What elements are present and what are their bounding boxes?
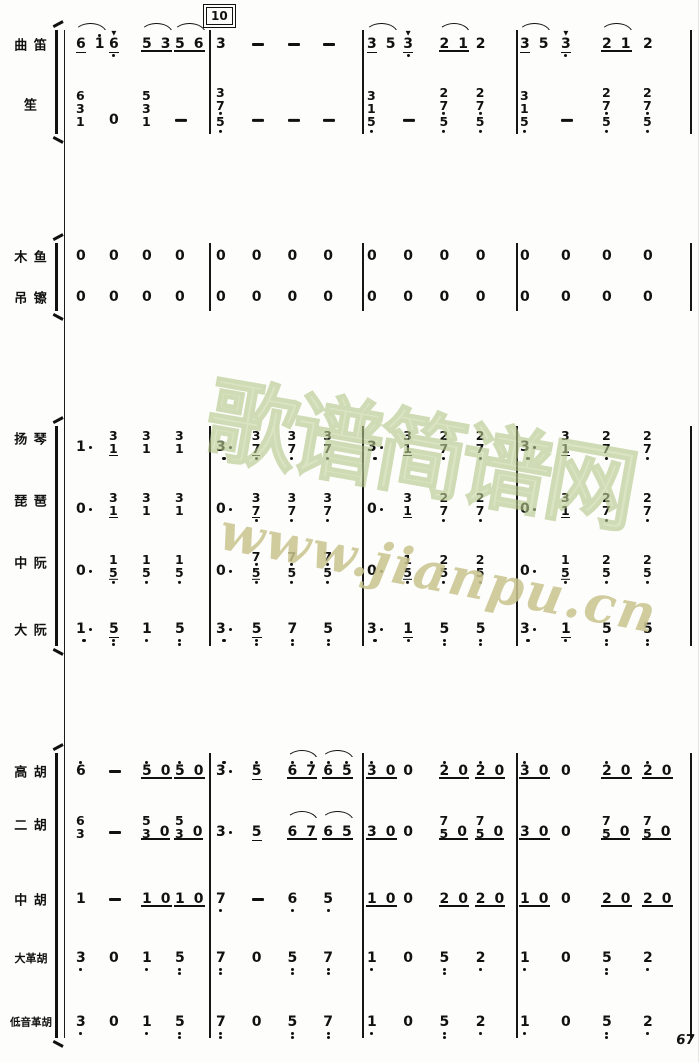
instrument-label-zhongruan: 中 阮 bbox=[2, 553, 60, 572]
octave-dot-below bbox=[605, 968, 608, 971]
note-group: 3 bbox=[216, 430, 232, 465]
note-group: 3 bbox=[216, 612, 232, 647]
note-token: 63 bbox=[76, 804, 85, 850]
note-cell: 631 bbox=[76, 79, 85, 138]
note-digit: 0 bbox=[403, 892, 413, 907]
note-cell: 0 bbox=[643, 239, 653, 274]
instrument-label-diyin-gehu: 低音革胡 bbox=[2, 1015, 60, 1030]
held-beat-dash bbox=[175, 119, 187, 121]
held-beat-dash bbox=[109, 898, 121, 900]
note-token: 0 bbox=[288, 280, 298, 315]
octave-dot-below bbox=[523, 968, 526, 971]
note-token: 0 bbox=[194, 882, 204, 917]
augmentation-dot bbox=[229, 570, 232, 573]
digit-row: 0 bbox=[520, 564, 536, 579]
note-group: 0 bbox=[561, 239, 571, 274]
digit-row: 5 bbox=[440, 622, 450, 637]
note-token bbox=[323, 103, 335, 138]
instrument-label-gaohu: 高 胡 bbox=[2, 762, 60, 781]
note-token: 2 bbox=[476, 941, 486, 976]
note-token: 1 bbox=[142, 1005, 152, 1040]
note-digit: 0 bbox=[216, 564, 226, 579]
digit-row: 3 bbox=[216, 622, 232, 637]
note-digit: 0 bbox=[216, 502, 226, 517]
digit-row: 7 bbox=[602, 442, 611, 455]
note-token: 2 bbox=[440, 882, 450, 917]
note-token: 0 bbox=[561, 1005, 571, 1040]
note-digit: 0 bbox=[561, 892, 571, 907]
note-cell: 65 bbox=[323, 815, 352, 850]
note-token: 7 bbox=[323, 1005, 333, 1040]
note-digit: 7 bbox=[252, 550, 261, 563]
note-group: 0 bbox=[109, 103, 119, 138]
beam-underline bbox=[642, 777, 673, 779]
note-cell: 50 bbox=[175, 754, 204, 789]
note-cell: 1 bbox=[520, 941, 530, 976]
stave-row-diyin-gehu: 3015705710521052 bbox=[68, 1005, 684, 1040]
octave-dot-below bbox=[79, 1032, 82, 1035]
note-group: 1 bbox=[142, 1005, 152, 1040]
below-marks bbox=[291, 637, 294, 647]
note-cell: 7 bbox=[288, 612, 298, 647]
note-group: 750 bbox=[440, 804, 467, 850]
note-token: 0 bbox=[109, 239, 119, 274]
digit-row: 0 bbox=[403, 1015, 413, 1030]
note-digit: 6 bbox=[76, 764, 86, 779]
note-token: 0 bbox=[109, 280, 119, 315]
note-token: 1 bbox=[520, 941, 530, 976]
note-digit: 1 bbox=[142, 622, 152, 637]
octave-dot-below bbox=[326, 581, 329, 584]
digit-row: 7 bbox=[476, 442, 485, 455]
beam-underline bbox=[519, 838, 550, 840]
note-digit: 3 bbox=[76, 951, 86, 966]
note-token: 31 bbox=[109, 481, 118, 527]
note-group: 0 bbox=[288, 239, 298, 274]
note-cell: 6 bbox=[76, 754, 86, 789]
note-group: 2 bbox=[476, 27, 486, 62]
note-token: 0 bbox=[142, 280, 152, 315]
note-digit: 0 bbox=[561, 951, 571, 966]
note-cell: 315 bbox=[520, 79, 529, 138]
octave-dot-below bbox=[219, 1036, 222, 1039]
octave-dot-below bbox=[646, 968, 649, 971]
below-marks bbox=[605, 1030, 608, 1040]
note-cell: 6 bbox=[288, 882, 298, 917]
note-group: 27 bbox=[643, 481, 652, 527]
slur-arc bbox=[286, 811, 319, 822]
beam-underline bbox=[141, 905, 172, 907]
note-cell: 2 bbox=[476, 1005, 486, 1040]
digit-row: 2 bbox=[643, 1015, 653, 1030]
instrument-label-pipa: 琵 琶 bbox=[2, 491, 60, 510]
held-beat-dash bbox=[323, 43, 335, 45]
note-group: 3 bbox=[76, 1005, 86, 1040]
note-group: 0 bbox=[602, 280, 612, 315]
note-digit: 5 bbox=[109, 566, 118, 580]
note-group: 0 bbox=[252, 239, 262, 274]
digit-row: 0 bbox=[403, 892, 413, 907]
note-token: 1 bbox=[403, 612, 413, 647]
octave-dot-below bbox=[327, 968, 330, 971]
note-group: 5 bbox=[175, 941, 185, 976]
note-digit: 0 bbox=[252, 1015, 262, 1030]
note-token: 3 bbox=[367, 754, 377, 789]
beam-underline bbox=[287, 838, 318, 840]
digit-row bbox=[252, 37, 264, 52]
note-digit: 0 bbox=[175, 290, 185, 305]
octave-dot-below bbox=[291, 968, 294, 971]
note-group: 27 bbox=[476, 419, 485, 465]
below-marks bbox=[442, 517, 445, 527]
note-group: 35 bbox=[367, 27, 396, 62]
measure: 1515 bbox=[68, 612, 208, 647]
digit-row: 0 bbox=[323, 249, 333, 264]
note-token: 2 bbox=[602, 882, 612, 917]
below-marks bbox=[443, 637, 446, 647]
note-token: 2 bbox=[643, 882, 653, 917]
note-digit: 0 bbox=[323, 290, 333, 305]
octave-dot-below bbox=[178, 968, 181, 971]
below-marks bbox=[290, 517, 293, 527]
below-marks bbox=[326, 579, 329, 589]
note-cell: 53 bbox=[142, 27, 171, 62]
barline bbox=[690, 426, 692, 646]
note-token: 5 bbox=[602, 612, 612, 647]
note-digit: 7 bbox=[288, 550, 297, 563]
note-cell: 63 bbox=[76, 804, 85, 850]
digit-row: 5 bbox=[476, 622, 486, 637]
digit-row: 0 bbox=[561, 1015, 571, 1030]
octave-dot-below bbox=[145, 968, 148, 971]
note-digit: 7 bbox=[602, 99, 611, 112]
note-token: 1 bbox=[520, 882, 530, 917]
instrument-label-yangqin: 扬 琴 bbox=[2, 429, 60, 448]
digit-row: 5 bbox=[440, 951, 450, 966]
note-token: 5 bbox=[252, 612, 262, 647]
octave-dot-below bbox=[646, 130, 649, 133]
note-token: 37 bbox=[252, 419, 261, 465]
barline bbox=[690, 753, 692, 1038]
note-group: 0 bbox=[216, 554, 232, 589]
measure: 35▼3212 bbox=[512, 27, 684, 62]
note-token: 6 bbox=[76, 754, 86, 789]
note-digit: 2 bbox=[476, 37, 486, 52]
below-marks bbox=[178, 966, 181, 976]
note-digit: 0 bbox=[367, 290, 377, 305]
note-token: 1 bbox=[561, 612, 571, 647]
note-token: 1 bbox=[367, 1005, 377, 1040]
below-marks bbox=[442, 128, 445, 138]
note-digit: 1 bbox=[367, 951, 377, 966]
measure: 1313131 bbox=[68, 419, 208, 465]
beam-underline bbox=[475, 905, 506, 907]
digit-row bbox=[323, 37, 335, 52]
note-digit: 0 bbox=[76, 249, 86, 264]
note-group: 0 bbox=[323, 280, 333, 315]
note-digit: 0 bbox=[440, 249, 450, 264]
octave-dot-below bbox=[479, 639, 482, 642]
note-token: 0 bbox=[495, 754, 505, 789]
held-beat-dash bbox=[403, 119, 415, 121]
digit-row: 5 bbox=[440, 115, 449, 128]
note-digit: 2 bbox=[643, 951, 653, 966]
below-marks bbox=[326, 517, 329, 527]
note-cell: 3 bbox=[216, 754, 232, 789]
note-token: 3 bbox=[216, 27, 226, 62]
note-cell: 0 bbox=[216, 280, 226, 315]
note-token: 31 bbox=[109, 419, 118, 465]
note-cell: 0 bbox=[109, 1005, 119, 1040]
note-token: 7 bbox=[216, 882, 226, 917]
augmentation-dot bbox=[533, 570, 536, 573]
note-cell: 5 bbox=[252, 754, 262, 789]
note-token: 0 bbox=[216, 492, 232, 527]
note-group: 0 bbox=[440, 280, 450, 315]
below-marks bbox=[145, 966, 148, 976]
note-group: 315 bbox=[520, 79, 529, 138]
stave-row-muyu: 0000000000000000 bbox=[68, 239, 684, 274]
note-digit: 3 bbox=[216, 622, 226, 637]
note-token: 0 bbox=[520, 492, 536, 527]
note-digit: 0 bbox=[440, 290, 450, 305]
note-cell: 67 bbox=[288, 754, 317, 789]
octave-dot-below bbox=[290, 519, 293, 522]
note-group: 2 bbox=[643, 941, 653, 976]
note-cell: 75 bbox=[323, 540, 332, 589]
octave-dot-below bbox=[219, 972, 222, 975]
note-group: 31 bbox=[109, 481, 118, 527]
note-token: 3 bbox=[520, 612, 536, 647]
instrument-label-sheng: 笙 bbox=[2, 95, 60, 114]
note-group: 10 bbox=[520, 882, 549, 917]
note-digit: 5 bbox=[288, 566, 297, 579]
note-group: 5 bbox=[288, 1005, 298, 1040]
measure: 0151515 bbox=[68, 543, 208, 589]
note-digit: 5 bbox=[323, 566, 332, 579]
digit-row: 0 bbox=[561, 892, 571, 907]
digit-row: 1 bbox=[561, 442, 570, 455]
note-token: 0 bbox=[367, 554, 383, 589]
note-token: 0 bbox=[252, 280, 262, 315]
note-token: 0 bbox=[520, 280, 530, 315]
note-group: 50 bbox=[142, 754, 171, 789]
note-group: 65 bbox=[323, 815, 352, 850]
note-group bbox=[109, 882, 121, 917]
note-token: 315 bbox=[367, 79, 376, 138]
note-cell: 0 bbox=[175, 280, 185, 315]
octave-dot-below bbox=[646, 519, 649, 522]
note-token: 5 bbox=[175, 612, 185, 647]
held-beat-dash bbox=[252, 119, 264, 121]
below-marks bbox=[479, 455, 482, 465]
note-group: 0 bbox=[561, 754, 571, 789]
augmentation-dot bbox=[533, 446, 536, 449]
note-token: 0 bbox=[561, 754, 571, 789]
octave-dot-below bbox=[291, 1032, 294, 1035]
note-token: 1 bbox=[142, 941, 152, 976]
digit-row: 7 bbox=[288, 442, 297, 455]
note-cell: 0 bbox=[216, 492, 232, 527]
note-cell: 2 bbox=[476, 27, 486, 62]
note-token: 275 bbox=[602, 76, 611, 138]
below-marks bbox=[605, 966, 608, 976]
octave-dot-below bbox=[178, 643, 181, 646]
note-token: 0 bbox=[216, 280, 226, 315]
note-cell: 27 bbox=[643, 419, 652, 465]
held-beat-dash bbox=[252, 43, 264, 45]
digit-row: 7 bbox=[476, 99, 485, 112]
note-cell: 2 bbox=[643, 27, 653, 62]
octave-dot-below bbox=[255, 457, 258, 460]
digit-row: 7 bbox=[323, 442, 332, 455]
note-group: 30 bbox=[520, 815, 549, 850]
beam-underline bbox=[439, 777, 470, 779]
note-cell: 67 bbox=[288, 815, 317, 850]
below-marks bbox=[564, 579, 567, 589]
measure: 3155 bbox=[512, 612, 684, 647]
note-cell: 2 bbox=[643, 1005, 653, 1040]
note-cell: 25 bbox=[476, 543, 485, 589]
note-group: 1 bbox=[142, 941, 152, 976]
note-cell: 2 bbox=[476, 941, 486, 976]
note-digit: 5 bbox=[440, 951, 450, 966]
octave-dot-below bbox=[370, 1032, 373, 1035]
note-token: 3 bbox=[520, 430, 536, 465]
note-digit: 0 bbox=[520, 502, 530, 517]
note-group: 25 bbox=[643, 543, 652, 589]
note-group: 53 bbox=[142, 27, 171, 62]
note-digit: 0 bbox=[602, 290, 612, 305]
note-digit: 5 bbox=[109, 622, 119, 638]
below-marks bbox=[479, 128, 482, 138]
note-token bbox=[252, 882, 264, 917]
note-cell: 3 bbox=[367, 612, 383, 647]
note-cell: 0 bbox=[520, 239, 530, 274]
note-token: 25 bbox=[643, 543, 652, 589]
note-digit: 3 bbox=[520, 622, 530, 637]
note-digit: 7 bbox=[288, 622, 298, 637]
instrument-label-zhonghu: 中 胡 bbox=[2, 890, 60, 909]
note-token: 0 bbox=[458, 882, 468, 917]
below-marks bbox=[479, 637, 482, 647]
note-digit: 0 bbox=[323, 249, 333, 264]
note-cell: 750 bbox=[440, 804, 467, 850]
note-cell: 0 bbox=[367, 280, 377, 315]
octave-dot-below bbox=[407, 54, 410, 57]
note-group: 25 bbox=[602, 543, 611, 589]
note-group: 3 bbox=[520, 430, 536, 465]
note-group: 27 bbox=[643, 419, 652, 465]
note-token: 0 bbox=[440, 280, 450, 315]
note-cell: 750 bbox=[602, 804, 629, 850]
note-cell: 5 bbox=[175, 941, 185, 976]
digit-row: 0 bbox=[288, 249, 298, 264]
note-digit: 0 bbox=[561, 290, 571, 305]
digit-row: 1 bbox=[142, 951, 152, 966]
note-cell: 0 bbox=[288, 239, 298, 274]
below-marks bbox=[523, 966, 526, 976]
note-digit: 0 bbox=[109, 951, 119, 966]
note-group: 10 bbox=[175, 882, 204, 917]
note-cell: 0 bbox=[142, 239, 152, 274]
octave-dot-below bbox=[443, 1032, 446, 1035]
note-cell: 0 bbox=[561, 815, 571, 850]
note-cell: 0 bbox=[561, 882, 571, 917]
note-group: 56 bbox=[175, 27, 204, 62]
note-cell: 1 bbox=[76, 612, 92, 647]
note-cell: 375 bbox=[216, 76, 225, 138]
note-token: 531 bbox=[142, 79, 151, 138]
digit-row: 1 bbox=[109, 442, 118, 455]
note-token: 37 bbox=[323, 481, 332, 527]
below-marks bbox=[112, 637, 115, 647]
digit-row: 5 bbox=[142, 566, 151, 579]
note-cell: 37 bbox=[252, 481, 261, 527]
note-cell bbox=[109, 754, 121, 789]
digit-row: 7 bbox=[323, 951, 333, 966]
digit-row: 5 bbox=[539, 37, 549, 52]
note-group: 20 bbox=[440, 754, 469, 789]
note-group bbox=[175, 103, 187, 138]
octave-dot-below bbox=[326, 457, 329, 460]
note-cell: 5 bbox=[288, 941, 298, 976]
note-token: 3 bbox=[367, 430, 383, 465]
note-cell: 0 bbox=[602, 239, 612, 274]
note-token: 27 bbox=[602, 419, 611, 465]
note-cell: 1 bbox=[367, 1005, 377, 1040]
digit-row: 1 bbox=[76, 440, 92, 455]
stave-row-erhu: 63530530356765300750750300750750 bbox=[68, 804, 684, 850]
note-cell: 31 bbox=[109, 419, 118, 465]
octave-dot-below bbox=[646, 457, 649, 460]
instrument-label-diaocha: 吊 镲 bbox=[2, 288, 60, 307]
below-marks bbox=[178, 579, 181, 589]
note-cell: 75 bbox=[288, 540, 297, 589]
octave-dot-below bbox=[605, 457, 608, 460]
note-group: 7 bbox=[288, 612, 298, 647]
below-marks bbox=[646, 966, 649, 976]
note-group: 75 bbox=[288, 540, 297, 589]
note-token: 75 bbox=[643, 804, 652, 850]
note-token: 0 bbox=[403, 239, 413, 274]
note-token: 31 bbox=[403, 419, 412, 465]
note-token: 0 bbox=[76, 492, 92, 527]
digit-row: 5 bbox=[386, 37, 396, 52]
note-group bbox=[323, 103, 335, 138]
digit-row: 7 bbox=[323, 504, 332, 517]
note-token: 25 bbox=[440, 543, 449, 589]
measure: 1052 bbox=[359, 941, 512, 976]
note-group: 15 bbox=[142, 543, 151, 589]
note-cell bbox=[175, 103, 187, 138]
note-group: 0 bbox=[643, 280, 653, 315]
note-cell: 5 bbox=[602, 941, 612, 976]
beam-underline bbox=[174, 50, 205, 52]
digit-row: 5 bbox=[288, 951, 298, 966]
note-cell: 27 bbox=[643, 481, 652, 527]
note-cell: 5 bbox=[602, 612, 612, 647]
digit-row: 0 bbox=[288, 290, 298, 305]
measure: 1052 bbox=[512, 1005, 684, 1040]
note-group bbox=[288, 103, 300, 138]
note-token: 5 bbox=[175, 941, 185, 976]
note-cell: 0 bbox=[520, 554, 536, 589]
note-token: 5 bbox=[440, 612, 450, 647]
note-cell: 3 bbox=[216, 612, 232, 647]
note-digit: 2 bbox=[476, 951, 486, 966]
digit-row: 0 bbox=[440, 290, 450, 305]
